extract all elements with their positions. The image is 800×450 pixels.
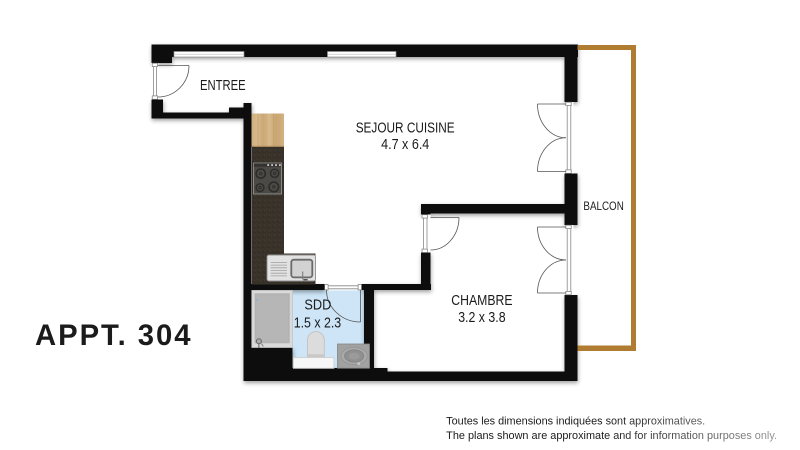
svg-text:APPT. 304: APPT. 304 xyxy=(35,319,193,352)
svg-text:4.7 x 6.4: 4.7 x 6.4 xyxy=(381,137,429,153)
svg-text:SDD: SDD xyxy=(304,297,331,313)
svg-text:1.5 x 2.3: 1.5 x 2.3 xyxy=(294,316,342,332)
svg-text:ENTREE: ENTREE xyxy=(200,78,246,94)
svg-text:3.2 x 3.8: 3.2 x 3.8 xyxy=(458,310,505,326)
svg-text:CHAMBRE: CHAMBRE xyxy=(451,293,512,309)
svg-text:SEJOUR CUISINE: SEJOUR CUISINE xyxy=(356,121,455,137)
svg-text:BALCON: BALCON xyxy=(583,200,623,213)
